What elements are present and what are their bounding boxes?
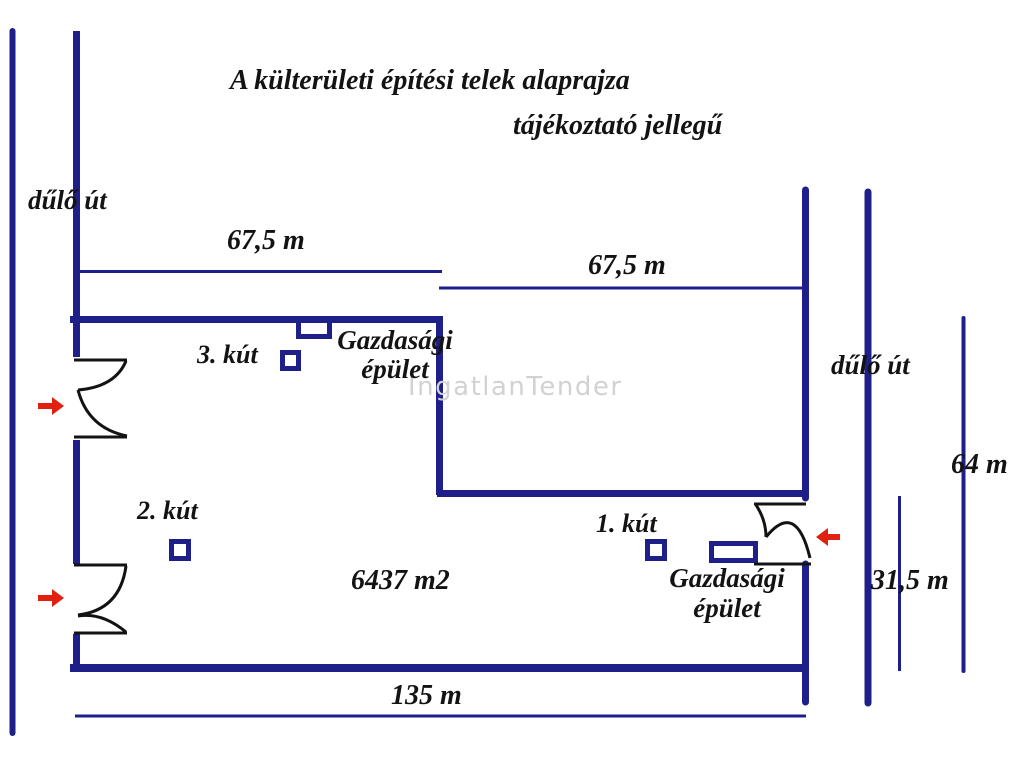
well-3-label: 3. kút <box>197 341 258 368</box>
well-2-marker <box>172 542 189 559</box>
well-1-label: 1. kút <box>596 510 657 537</box>
dim-label-135m: 135 m <box>391 681 462 710</box>
site-plan: IngatlanTender A külterületi építési tel… <box>0 0 1024 768</box>
dim-label-67m-right: 67,5 m <box>588 251 666 280</box>
well-3-marker <box>283 353 299 369</box>
dim-label-31m: 31,5 m <box>871 566 949 595</box>
parcel-area-label: 6437 m2 <box>351 566 450 595</box>
gate-symbol-left-lower <box>74 565 127 633</box>
well-1-marker <box>648 542 665 559</box>
farm-building-top-label-line2: épület <box>325 355 465 384</box>
well-2-label: 2. kút <box>137 497 198 524</box>
farm-building-top-label-line1: Gazdasági <box>325 326 465 355</box>
entrance-arrow-right <box>816 528 840 546</box>
farm-building-right-label: Gazdasági épület <box>657 563 797 623</box>
gate-symbol-right <box>754 504 811 564</box>
entrance-arrow-left-upper <box>38 397 64 415</box>
dim-label-64m: 64 m <box>951 450 1008 479</box>
dim-label-67m-left: 67,5 m <box>227 226 305 255</box>
entrance-arrow-left-lower <box>38 589 64 607</box>
farm-building-right-footprint <box>712 544 756 561</box>
page-title: A külterületi építési telek alaprajza <box>230 66 630 95</box>
farm-building-right-label-line2: épület <box>657 593 797 623</box>
farm-building-right-label-line1: Gazdasági <box>657 563 797 593</box>
gate-symbol-left-upper <box>74 360 127 437</box>
road-label-left: dűlő út <box>28 186 107 214</box>
page-subtitle: tájékoztató jellegű <box>513 111 722 140</box>
farm-building-top-label: Gazdasági épület <box>325 326 465 384</box>
road-label-right: dűlő út <box>831 351 910 379</box>
